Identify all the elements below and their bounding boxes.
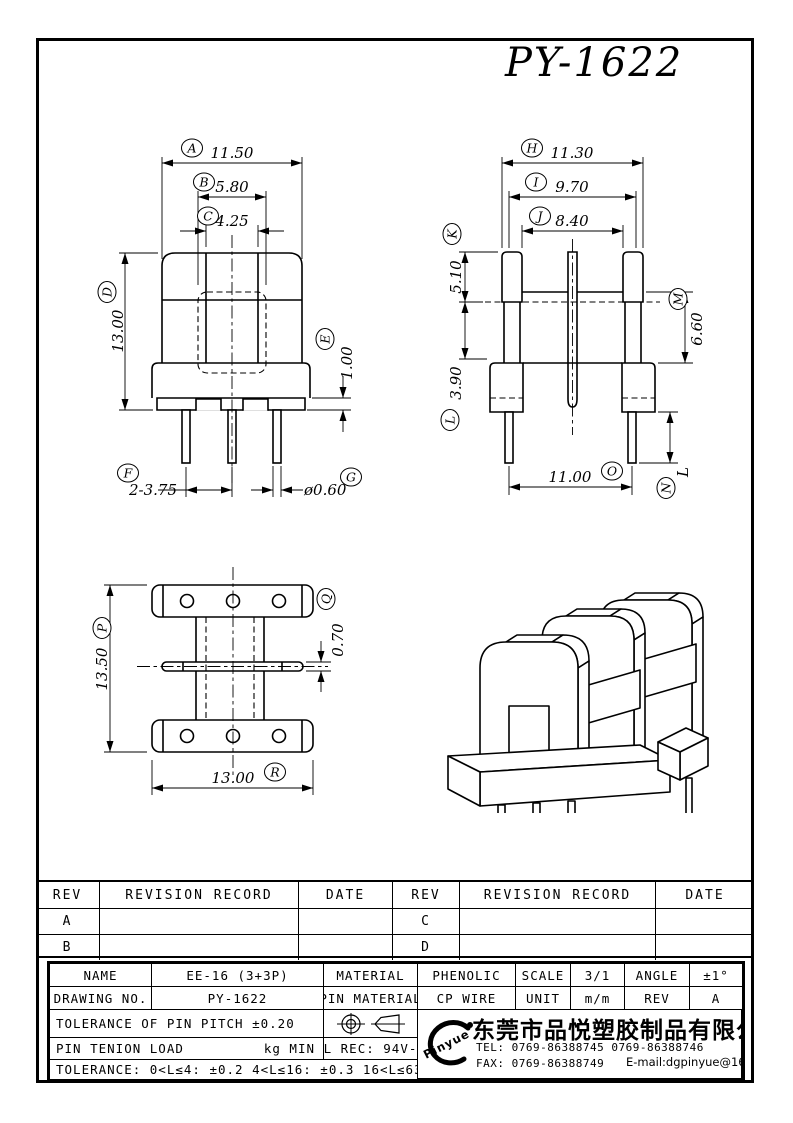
- svg-text:P: P: [95, 623, 110, 633]
- name-label: NAME: [50, 964, 152, 987]
- isometric-view: [430, 558, 720, 813]
- rev-header: REV: [36, 882, 100, 909]
- front-pin: [182, 410, 190, 463]
- company-email: E-mail:dgpinyue@163.com: [626, 1055, 742, 1069]
- dim-value-L: 3.90: [447, 366, 465, 400]
- pin-material-label: PIN MATERIAL: [324, 987, 418, 1010]
- pin-tension-row: PIN TENION LOAD kg MIN: [50, 1038, 324, 1060]
- title-block: NAME EE-16 (3+3P) MATERIAL PHENOLIC SCAL…: [47, 961, 745, 1082]
- revision-table: REV REVISION RECORD DATE REV REVISION RE…: [36, 880, 754, 958]
- iso-pin: [498, 805, 505, 813]
- svg-text:H: H: [526, 141, 539, 156]
- rev-row-a: A: [36, 909, 100, 935]
- record-cell: [460, 935, 656, 960]
- iso-pin: [533, 803, 540, 813]
- pin-tension-unit: kg MIN: [264, 1041, 315, 1056]
- front-pedestal: [152, 363, 310, 398]
- date-cell: [656, 935, 754, 960]
- dim-value-H: 11.30: [551, 144, 594, 162]
- dim-value-A: 11.50: [211, 144, 254, 162]
- dim-label-F: F: [118, 464, 139, 482]
- side-view: 11.30 9.70 8.40 5.10 3.90 6.60 11.00 L H…: [425, 135, 725, 510]
- dim-label-A: A: [182, 139, 203, 157]
- front-view: 11.50 5.80 4.25 13.00 1.00 2-3.75 ø0.60 …: [95, 135, 375, 510]
- svg-text:A: A: [186, 141, 196, 156]
- dim-value-Q: 0.70: [329, 623, 347, 657]
- dim-label-E: E: [316, 329, 334, 350]
- dim-label-B: B: [194, 173, 215, 191]
- dim-label-J: J: [530, 207, 551, 225]
- date-header: DATE: [299, 882, 393, 909]
- svg-text:F: F: [123, 466, 134, 481]
- dim-label-I: I: [526, 173, 547, 191]
- record-header: REVISION RECORD: [100, 882, 299, 909]
- record-cell: [100, 935, 299, 960]
- side-left-flange: [502, 252, 522, 302]
- pin-material-value: CP WIRE: [418, 987, 516, 1010]
- svg-text:D: D: [100, 287, 115, 298]
- side-pin: [505, 412, 513, 463]
- projection-symbol-cell: [324, 1010, 418, 1038]
- side-pin: [628, 412, 636, 463]
- top-lower-flange: [152, 720, 313, 752]
- company-name: 东莞市品悦塑胶制品有限公司: [472, 1011, 742, 1045]
- svg-text:I: I: [533, 175, 540, 190]
- dim-value-M: 6.60: [688, 312, 706, 346]
- drawing-no-value: PY-1622: [152, 987, 324, 1010]
- svg-text:N: N: [659, 481, 674, 494]
- side-right-base-block: [622, 363, 655, 412]
- side-left-base-block: [490, 363, 523, 412]
- company-tel: TEL: 0769-86388745 0769-86388746: [476, 1041, 704, 1054]
- dim-value-K: 5.10: [447, 260, 465, 294]
- pinyue-logo-icon: Pinyue: [420, 1018, 476, 1070]
- rev-header: REV: [393, 882, 460, 909]
- length-tolerance: TOLERANCE: 0<L≤4: ±0.2 4<L≤16: ±0.3 16<L…: [50, 1060, 418, 1079]
- third-angle-projection-icon: [335, 1012, 407, 1036]
- svg-text:B: B: [198, 175, 208, 190]
- dim-value-F: 2-3.75: [128, 481, 177, 499]
- date-cell: [299, 935, 393, 960]
- dim-label-L: L: [441, 410, 459, 431]
- company-block: Pinyue 东莞市品悦塑胶制品有限公司 TEL: 0769-86388745 …: [418, 1010, 742, 1079]
- record-cell: [100, 909, 299, 935]
- unit-label: UNIT: [516, 987, 571, 1010]
- svg-text:O: O: [607, 464, 617, 479]
- dim-value-C: 4.25: [214, 212, 248, 230]
- dim-value-D: 13.00: [109, 309, 127, 352]
- flange-hole: [181, 595, 194, 608]
- record-cell: [460, 909, 656, 935]
- dim-label-M: M: [669, 289, 687, 310]
- record-header: REVISION RECORD: [460, 882, 656, 909]
- dim-value-N: L: [674, 467, 692, 478]
- pin-tension-label: PIN TENION LOAD: [56, 1041, 184, 1056]
- rev-row-c: C: [393, 909, 460, 935]
- dim-label-R: R: [265, 763, 286, 781]
- dim-label-N: N: [657, 478, 675, 499]
- pin-pitch-tolerance: TOLERANCE OF PIN PITCH ±0.20: [50, 1010, 324, 1038]
- svg-text:M: M: [671, 291, 686, 306]
- page-title: PY-1622: [505, 40, 745, 86]
- dim-label-G: G: [341, 468, 362, 486]
- ul-rec: UL REC: 94V-0: [324, 1038, 418, 1060]
- svg-text:Q: Q: [319, 594, 334, 604]
- svg-text:C: C: [203, 209, 213, 224]
- front-pin: [273, 410, 281, 463]
- dim-label-D: D: [98, 282, 116, 303]
- dim-value-P: 13.50: [93, 647, 111, 690]
- dim-label-C: C: [198, 207, 219, 225]
- dim-value-E: 1.00: [338, 346, 356, 380]
- flange-hole: [273, 730, 286, 743]
- rev-row-d: D: [393, 935, 460, 960]
- angle-label: ANGLE: [625, 964, 690, 987]
- svg-text:R: R: [269, 765, 279, 780]
- flange-hole: [181, 730, 194, 743]
- company-fax: FAX: 0769-86388749: [476, 1057, 604, 1070]
- iso-pin: [686, 778, 692, 813]
- rev-label: REV: [625, 987, 690, 1010]
- material-value: PHENOLIC: [418, 964, 516, 987]
- front-base-plate: [157, 398, 305, 410]
- dim-label-P: P: [93, 618, 111, 639]
- svg-text:L: L: [443, 416, 458, 425]
- unit-value: m/m: [571, 987, 625, 1010]
- scale-label: SCALE: [516, 964, 571, 987]
- dim-value-R: 13.00: [212, 769, 255, 787]
- dim-value-J: 8.40: [555, 212, 589, 230]
- drawing-sheet: { "title": "PY-1622", "dims": { "front":…: [0, 0, 793, 1123]
- name-value: EE-16 (3+3P): [152, 964, 324, 987]
- side-right-flange: [623, 252, 643, 302]
- top-upper-flange: [152, 585, 313, 617]
- dim-value-G: ø0.60: [303, 481, 347, 499]
- date-cell: [656, 909, 754, 935]
- rev-row-b: B: [36, 935, 100, 960]
- angle-value: ±1°: [690, 964, 742, 987]
- drawing-no-label: DRAWING NO.: [50, 987, 152, 1010]
- rev-value: A: [690, 987, 742, 1010]
- dim-label-O: O: [602, 462, 623, 480]
- material-label: MATERIAL: [324, 964, 418, 987]
- dim-label-Q: Q: [317, 589, 335, 610]
- scale-value: 3/1: [571, 964, 625, 987]
- date-cell: [299, 909, 393, 935]
- flange-hole: [273, 595, 286, 608]
- dim-value-O: 11.00: [549, 468, 592, 486]
- dim-value-B: 5.80: [215, 178, 249, 196]
- dim-label-H: H: [522, 139, 543, 157]
- iso-pin: [568, 801, 575, 813]
- date-header: DATE: [656, 882, 754, 909]
- dim-label-K: K: [443, 224, 461, 245]
- svg-text:K: K: [445, 229, 460, 240]
- top-view: 13.50 0.70 13.00 P Q R: [75, 555, 385, 815]
- svg-text:G: G: [346, 470, 356, 485]
- dim-value-I: 9.70: [555, 178, 589, 196]
- svg-text:E: E: [318, 334, 333, 344]
